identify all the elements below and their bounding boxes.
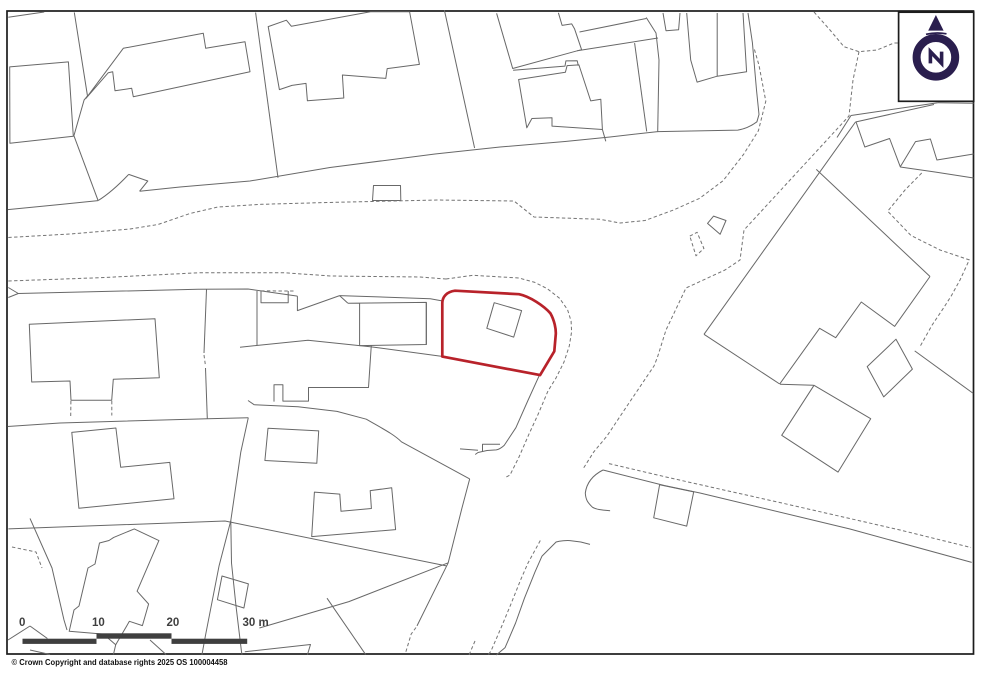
svg-text:© Crown Copyright and database: © Crown Copyright and database rights 20… — [12, 657, 228, 667]
svg-text:30 m: 30 m — [243, 617, 269, 629]
svg-text:0: 0 — [19, 617, 25, 629]
svg-text:10: 10 — [92, 617, 105, 629]
svg-text:20: 20 — [167, 617, 180, 629]
